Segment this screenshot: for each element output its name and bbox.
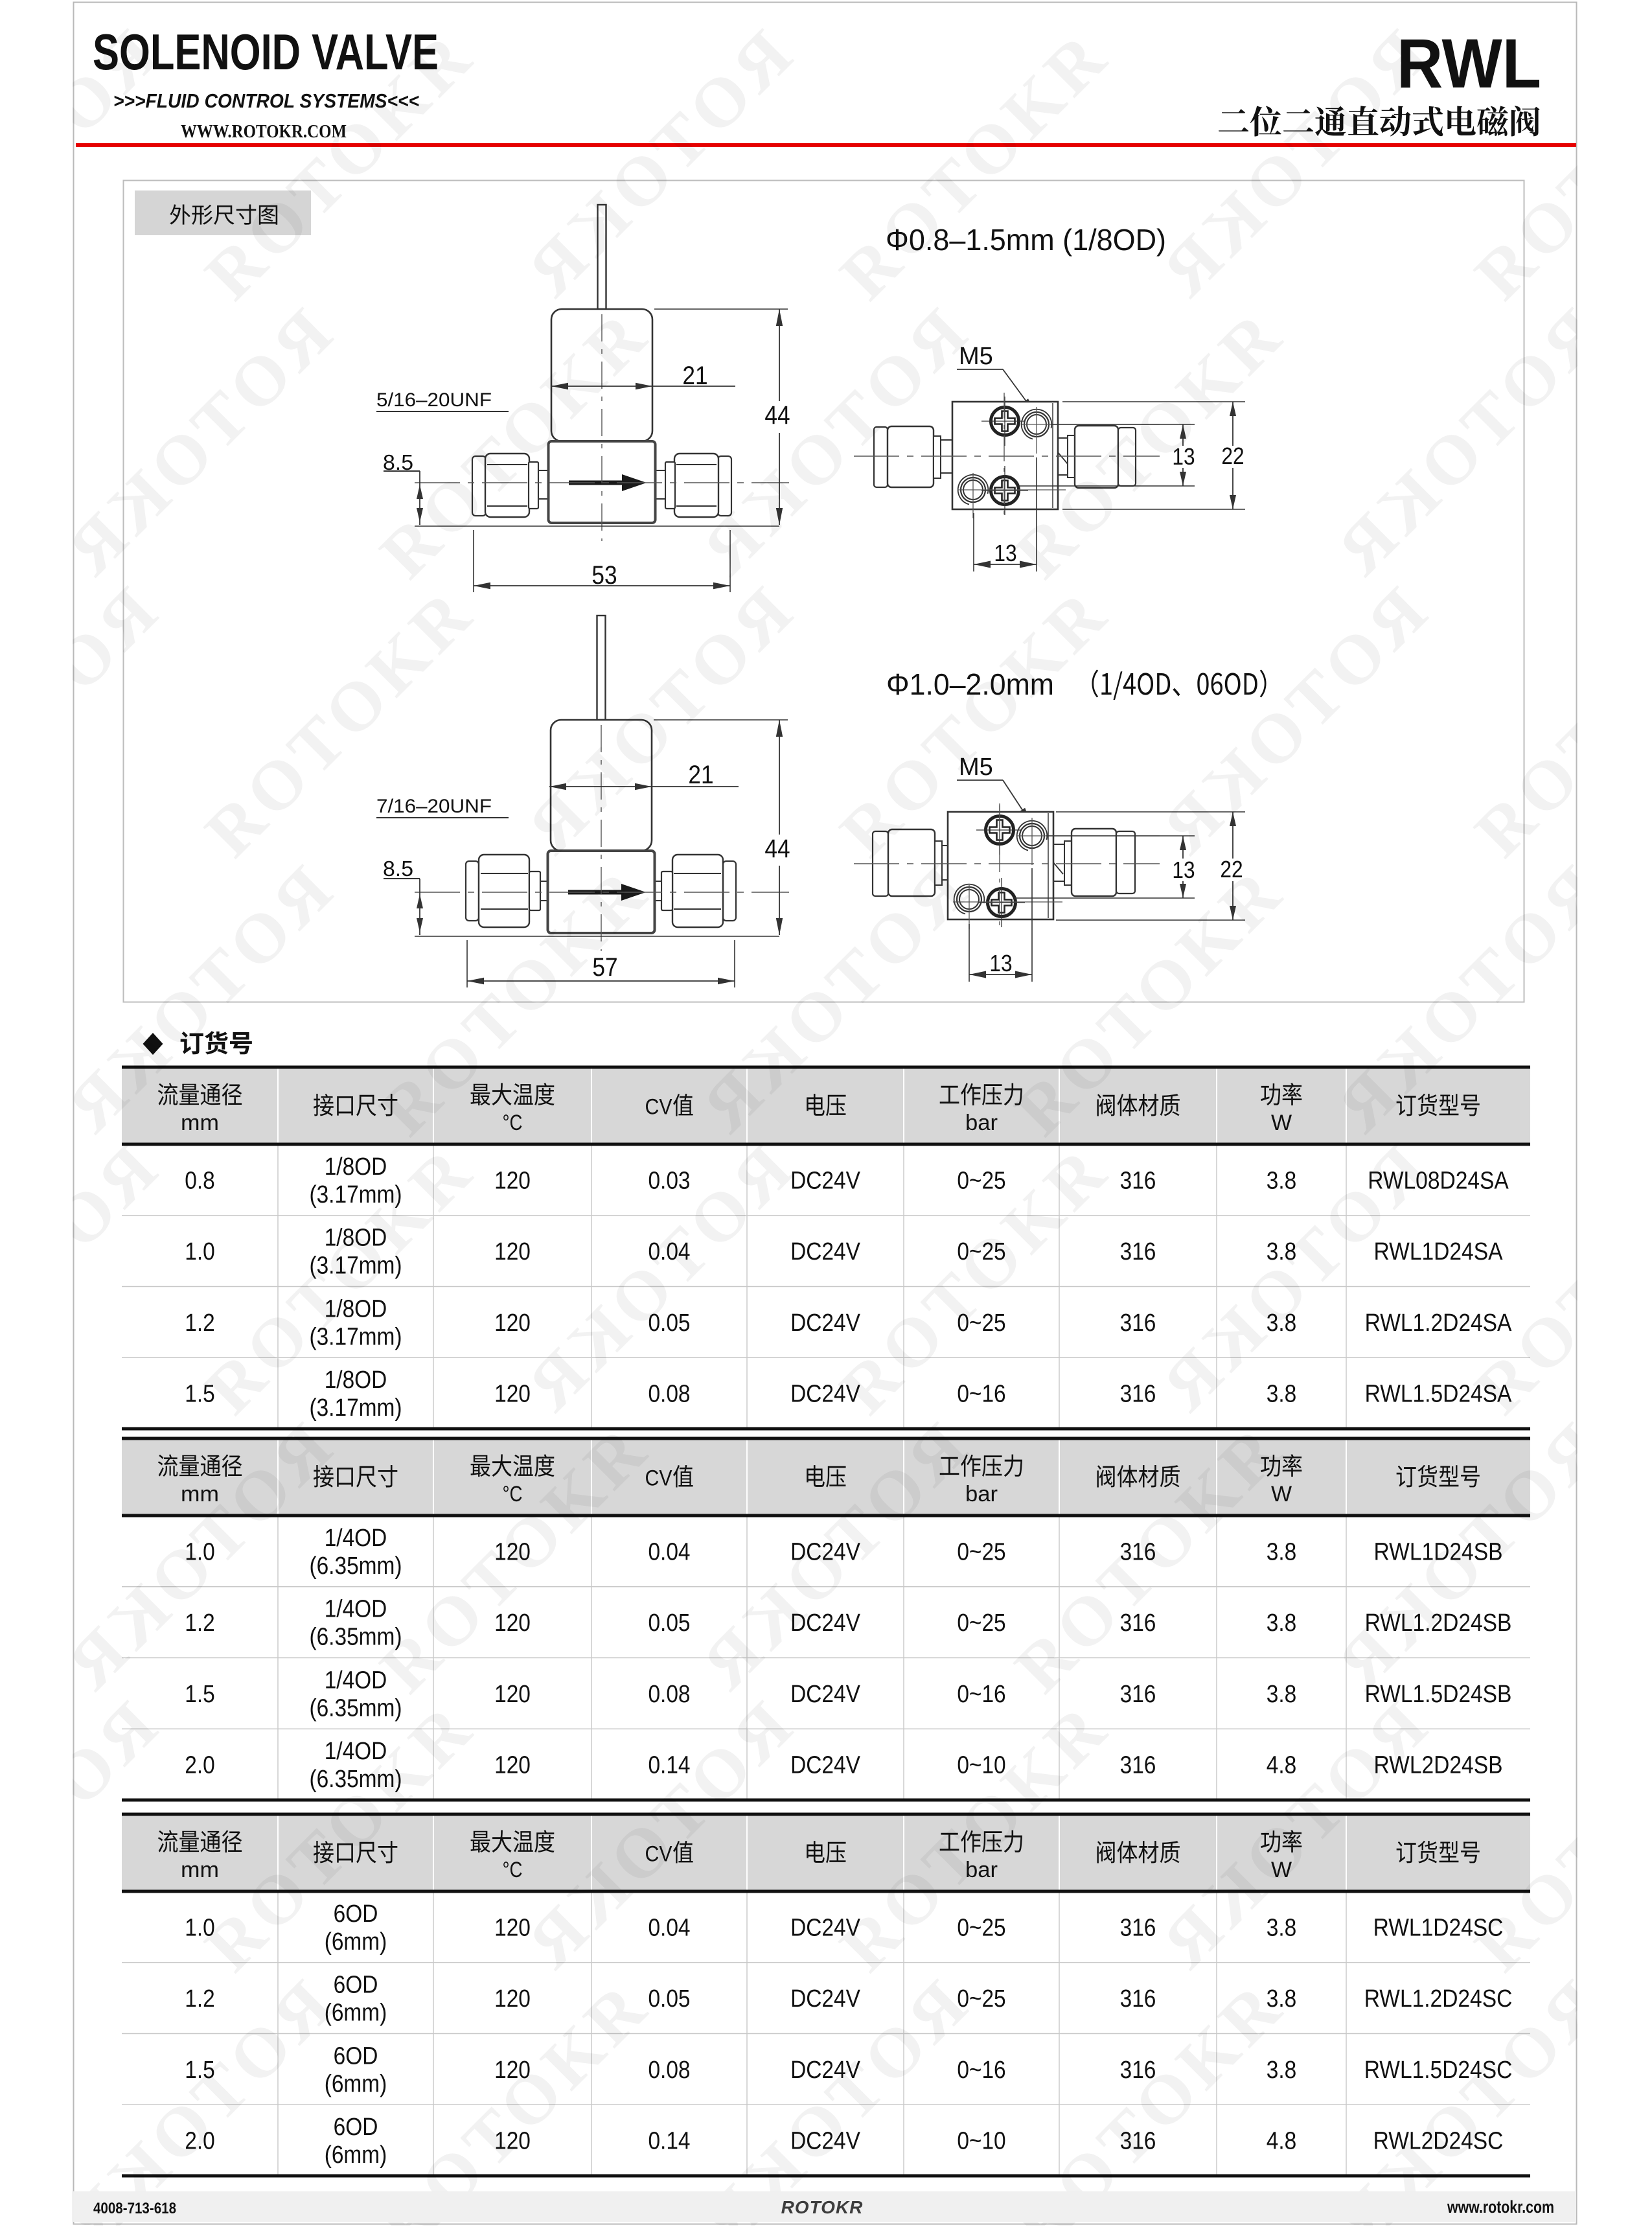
svg-text:bar: bar <box>965 1111 998 1135</box>
svg-text:0~25: 0~25 <box>957 1914 1005 1941</box>
svg-text:mm: mm <box>181 1858 219 1882</box>
svg-text:4.8: 4.8 <box>1267 1752 1297 1779</box>
svg-text:DC24V: DC24V <box>790 1238 860 1265</box>
svg-text:DC24V: DC24V <box>790 1681 860 1708</box>
svg-text:(6.35mm): (6.35mm) <box>309 1694 402 1722</box>
svg-text:RWL1D24SA: RWL1D24SA <box>1374 1238 1503 1265</box>
svg-text:6OD: 6OD <box>334 2042 378 2070</box>
svg-text:W: W <box>1271 1111 1292 1135</box>
svg-text:mm: mm <box>181 1111 219 1135</box>
svg-text:120: 120 <box>494 1985 531 2013</box>
svg-text:(6mm): (6mm) <box>325 2141 387 2169</box>
svg-text:www.rotokr.com: www.rotokr.com <box>1447 2197 1554 2217</box>
svg-text:RWL1.2D24SC: RWL1.2D24SC <box>1364 1985 1513 2013</box>
svg-text:0.08: 0.08 <box>648 1381 690 1408</box>
svg-text:0~25: 0~25 <box>957 1538 1005 1565</box>
svg-text:6OD: 6OD <box>334 2114 378 2141</box>
svg-text:316: 316 <box>1120 1381 1156 1408</box>
svg-text:0~10: 0~10 <box>957 2128 1005 2155</box>
svg-text:0.05: 0.05 <box>648 1985 690 2013</box>
svg-text:(6.35mm): (6.35mm) <box>309 1552 402 1580</box>
svg-text:(6mm): (6mm) <box>325 1928 387 1956</box>
svg-text:0~16: 0~16 <box>957 1681 1005 1708</box>
svg-text:44: 44 <box>764 835 790 863</box>
svg-text:0~16: 0~16 <box>957 1381 1005 1408</box>
svg-text:120: 120 <box>494 1752 531 1779</box>
svg-text:316: 316 <box>1120 1985 1156 2013</box>
svg-text:8.5: 8.5 <box>383 857 413 881</box>
svg-text:°C: °C <box>503 1111 523 1135</box>
svg-text:3.8: 3.8 <box>1267 1681 1297 1708</box>
svg-text:0.04: 0.04 <box>648 1914 690 1941</box>
svg-text:316: 316 <box>1120 1752 1156 1779</box>
svg-text:13: 13 <box>989 950 1012 976</box>
svg-text:0.08: 0.08 <box>648 2057 690 2084</box>
svg-text:120: 120 <box>494 1310 531 1337</box>
svg-text:7/16–20UNF: 7/16–20UNF <box>376 796 492 817</box>
svg-text:316: 316 <box>1120 1310 1156 1337</box>
svg-text:0.8: 0.8 <box>185 1167 215 1194</box>
svg-text:0.08: 0.08 <box>648 1681 690 1708</box>
svg-text:1.2: 1.2 <box>185 1985 215 2013</box>
svg-text:120: 120 <box>494 1167 531 1194</box>
svg-text:0.14: 0.14 <box>648 2128 690 2155</box>
svg-text:316: 316 <box>1120 1681 1156 1708</box>
svg-text:0.03: 0.03 <box>648 1167 690 1194</box>
svg-text:5/16–20UNF: 5/16–20UNF <box>376 389 492 411</box>
svg-text:0~25: 0~25 <box>957 1167 1005 1194</box>
svg-text:3.8: 3.8 <box>1267 1538 1297 1565</box>
svg-text:21: 21 <box>682 362 707 390</box>
svg-text:(3.17mm): (3.17mm) <box>309 1394 402 1422</box>
svg-text:44: 44 <box>764 401 790 430</box>
svg-text:4.8: 4.8 <box>1267 2128 1297 2155</box>
svg-text:1.5: 1.5 <box>185 1681 215 1708</box>
svg-text:1/4OD: 1/4OD <box>325 1596 387 1623</box>
svg-text:1/8OD: 1/8OD <box>325 1153 387 1181</box>
svg-text:120: 120 <box>494 1681 531 1708</box>
svg-text:6OD: 6OD <box>334 1900 378 1928</box>
svg-text:53: 53 <box>591 561 617 590</box>
svg-text:1.2: 1.2 <box>185 1310 215 1337</box>
svg-text:DC24V: DC24V <box>790 1752 860 1779</box>
svg-text:RWL1.2D24SA: RWL1.2D24SA <box>1365 1310 1512 1337</box>
svg-text:4008-713-618: 4008-713-618 <box>93 2200 176 2217</box>
svg-text:6OD: 6OD <box>334 1972 378 1999</box>
svg-text:3.8: 3.8 <box>1267 1914 1297 1941</box>
svg-text:22: 22 <box>1221 443 1244 469</box>
svg-text:2.0: 2.0 <box>185 1752 215 1779</box>
svg-text:3.8: 3.8 <box>1267 1167 1297 1194</box>
svg-text:316: 316 <box>1120 1167 1156 1194</box>
svg-text:DC24V: DC24V <box>790 1310 860 1337</box>
svg-text:0.04: 0.04 <box>648 1538 690 1565</box>
svg-text:1/4OD: 1/4OD <box>325 1667 387 1694</box>
svg-text:3.8: 3.8 <box>1267 2057 1297 2084</box>
svg-text:1/8OD: 1/8OD <box>325 1367 387 1394</box>
svg-text:0~25: 0~25 <box>957 1610 1005 1637</box>
svg-text:°C: °C <box>503 1858 523 1882</box>
svg-text:3.8: 3.8 <box>1267 1381 1297 1408</box>
svg-text:ROTOKR: ROTOKR <box>781 2197 864 2217</box>
svg-text:0~16: 0~16 <box>957 2057 1005 2084</box>
svg-text:bar: bar <box>965 1482 998 1506</box>
svg-text:CV: CV <box>645 1095 672 1120</box>
svg-text:1/4OD: 1/4OD <box>325 1525 387 1552</box>
svg-text:21: 21 <box>688 761 713 789</box>
svg-text:1.0: 1.0 <box>185 1238 215 1265</box>
svg-text:316: 316 <box>1120 1238 1156 1265</box>
svg-text:3.8: 3.8 <box>1267 1610 1297 1637</box>
svg-text:DC24V: DC24V <box>790 1985 860 2013</box>
svg-text:0.05: 0.05 <box>648 1610 690 1637</box>
svg-text:(6mm): (6mm) <box>325 2070 387 2097</box>
svg-text:120: 120 <box>494 1238 531 1265</box>
